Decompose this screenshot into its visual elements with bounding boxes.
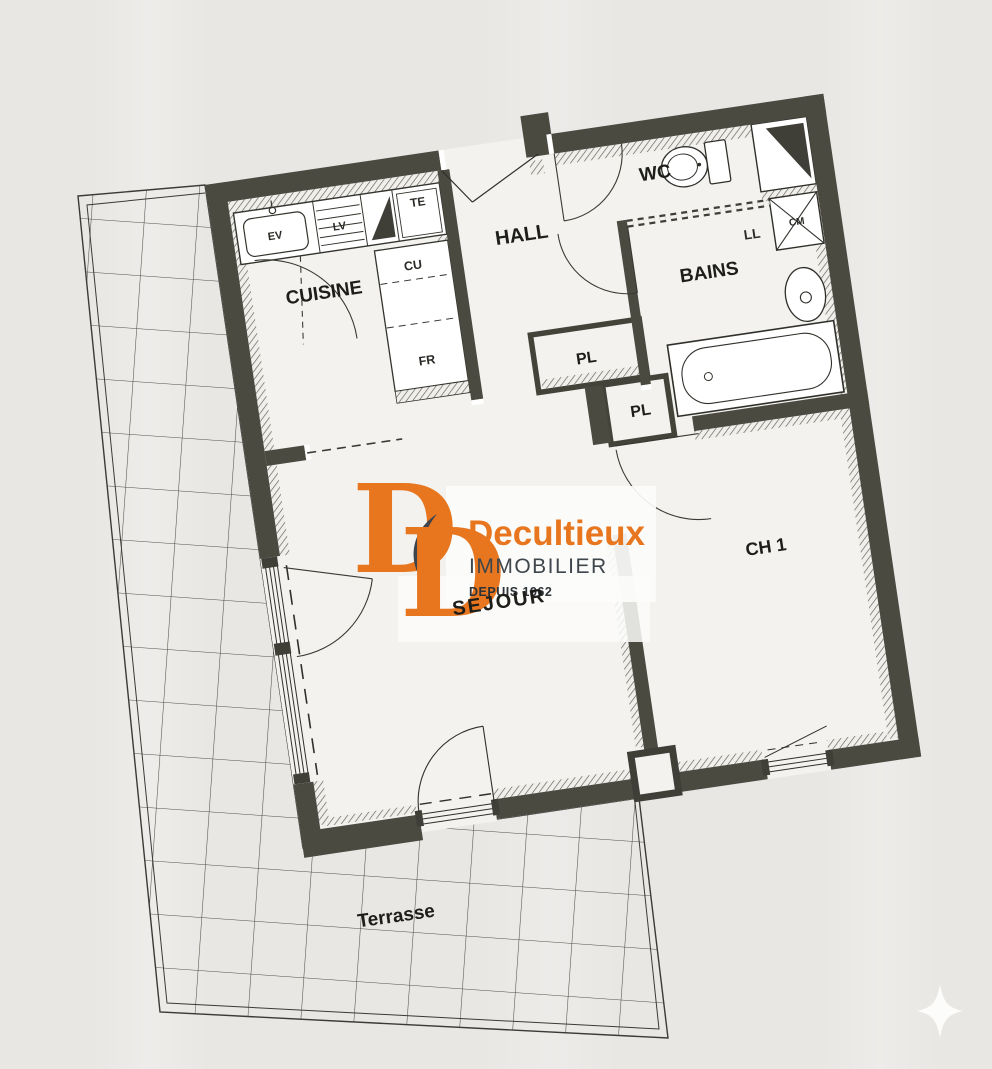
equip-label-te: TE bbox=[409, 194, 426, 210]
floor-plan-drawing: CM bbox=[0, 0, 992, 1069]
column bbox=[631, 749, 679, 799]
apartment-plan: CM bbox=[202, 72, 923, 858]
shower-icon bbox=[751, 116, 816, 191]
water-heater-icon: CM bbox=[769, 192, 824, 250]
room-label-pl1: PL bbox=[575, 349, 598, 369]
equip-label-fr: FR bbox=[418, 352, 437, 368]
logo-name: Decultieux bbox=[468, 514, 646, 553]
equip-label-ev: EV bbox=[267, 229, 284, 243]
equip-label-lv: LV bbox=[332, 220, 348, 234]
equip-label-cm: CM bbox=[788, 216, 805, 229]
logo-subtitle: IMMOBILIER bbox=[469, 555, 608, 578]
equip-label-ll: LL bbox=[743, 225, 762, 242]
room-label-pl2: PL bbox=[629, 401, 652, 421]
equip-label-cu: CU bbox=[403, 257, 423, 273]
floor-plan-page: CM bbox=[0, 0, 992, 1069]
